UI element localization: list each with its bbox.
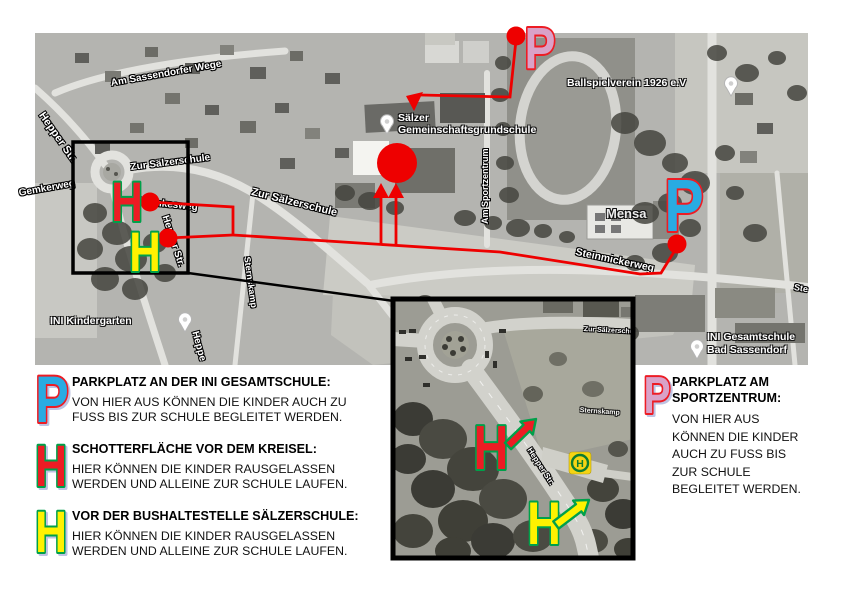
legend-body-1: VON HIER AUS KÖNNEN DIE KINDER AUCH ZU F…: [72, 395, 357, 425]
legend-body-2: HIER KÖNNEN DIE KINDER RAUSGELASSEN WERD…: [72, 462, 357, 492]
legend-p-pink-letter: P: [643, 373, 670, 419]
legend-icon-p-pink: P: [642, 373, 672, 419]
legend-title-1: PARKPLATZ AN DER INI GESAMTSCHULE:: [72, 375, 331, 391]
legend-h-yellow-letter: H: [35, 508, 67, 558]
legend-h-red-letter: H: [35, 442, 67, 492]
legend-right-title: PARKPLATZ AM SPORTZENTRUM:: [672, 375, 812, 406]
legend-p-cyan-letter: P: [35, 372, 68, 430]
legend-icon-h-red: H: [34, 442, 68, 492]
legend-body-3: HIER KÖNNEN DIE KINDER RAUSGELASSEN WERD…: [72, 529, 357, 559]
bus-stop-sign: H: [569, 452, 591, 474]
legend-icon-p-cyan: P: [34, 372, 70, 430]
legend-title-2: SCHOTTERFLÄCHE VOR DEM KREISEL:: [72, 442, 317, 458]
legend-icon-h-yellow: H: [34, 508, 68, 558]
legend-title-3: VOR DER BUSHALTESTELLE SÄLZERSCHULE:: [72, 509, 359, 525]
inset-aerial-map: H: [393, 299, 633, 558]
bus-stop-h-label: H: [576, 458, 584, 470]
flyer-page: Am Sassendorfer Wege Hepper Str. Gemkerw…: [0, 0, 842, 596]
legend-right-body: VON HIER AUS KÖNNEN DIE KINDER AUCH ZU F…: [672, 411, 804, 499]
